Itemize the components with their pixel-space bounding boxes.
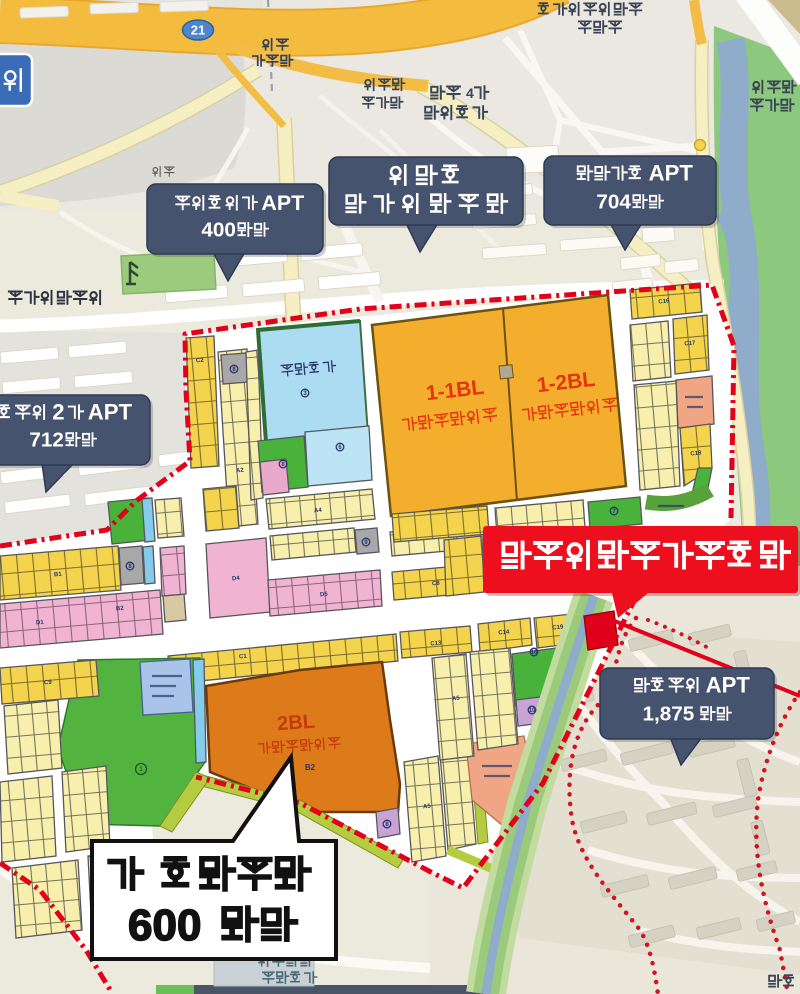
svg-text:B2: B2 xyxy=(116,606,125,613)
svg-text:600: 600 xyxy=(128,901,201,950)
svg-text:C13: C13 xyxy=(430,640,442,647)
svg-text:712: 712 xyxy=(29,429,64,452)
svg-text:1,875: 1,875 xyxy=(643,703,695,726)
svg-text:2BL: 2BL xyxy=(276,711,315,736)
svg-text:D5: D5 xyxy=(320,592,329,599)
svg-text:21: 21 xyxy=(191,23,205,38)
svg-text:B1: B1 xyxy=(54,572,63,579)
svg-text:4: 4 xyxy=(466,85,474,101)
svg-text:10: 10 xyxy=(529,708,536,714)
svg-text:C9: C9 xyxy=(44,680,53,687)
svg-text:APT: APT xyxy=(261,191,304,215)
svg-text:APT: APT xyxy=(649,161,694,186)
svg-text:B2: B2 xyxy=(305,763,316,772)
svg-text:C14: C14 xyxy=(498,629,510,636)
svg-text:APT: APT xyxy=(706,673,751,698)
svg-text:C2: C2 xyxy=(196,358,205,365)
svg-text:A4: A4 xyxy=(314,508,323,515)
svg-text:C17: C17 xyxy=(684,340,696,347)
svg-text:C16: C16 xyxy=(658,298,670,305)
svg-text:400: 400 xyxy=(201,219,236,242)
svg-text:A2: A2 xyxy=(236,468,245,475)
svg-text:D4: D4 xyxy=(232,576,241,583)
svg-text:APT: APT xyxy=(88,400,133,425)
svg-text:D1: D1 xyxy=(36,620,45,627)
svg-text:A5: A5 xyxy=(423,804,432,811)
svg-text:C18: C18 xyxy=(690,450,702,457)
svg-text:C1: C1 xyxy=(239,654,248,661)
svg-text:A5: A5 xyxy=(452,696,461,703)
svg-text:C8: C8 xyxy=(432,581,441,588)
svg-text:10: 10 xyxy=(531,650,538,656)
svg-text:704: 704 xyxy=(596,191,631,214)
svg-text:C19: C19 xyxy=(552,624,564,631)
svg-text:2: 2 xyxy=(52,400,64,425)
